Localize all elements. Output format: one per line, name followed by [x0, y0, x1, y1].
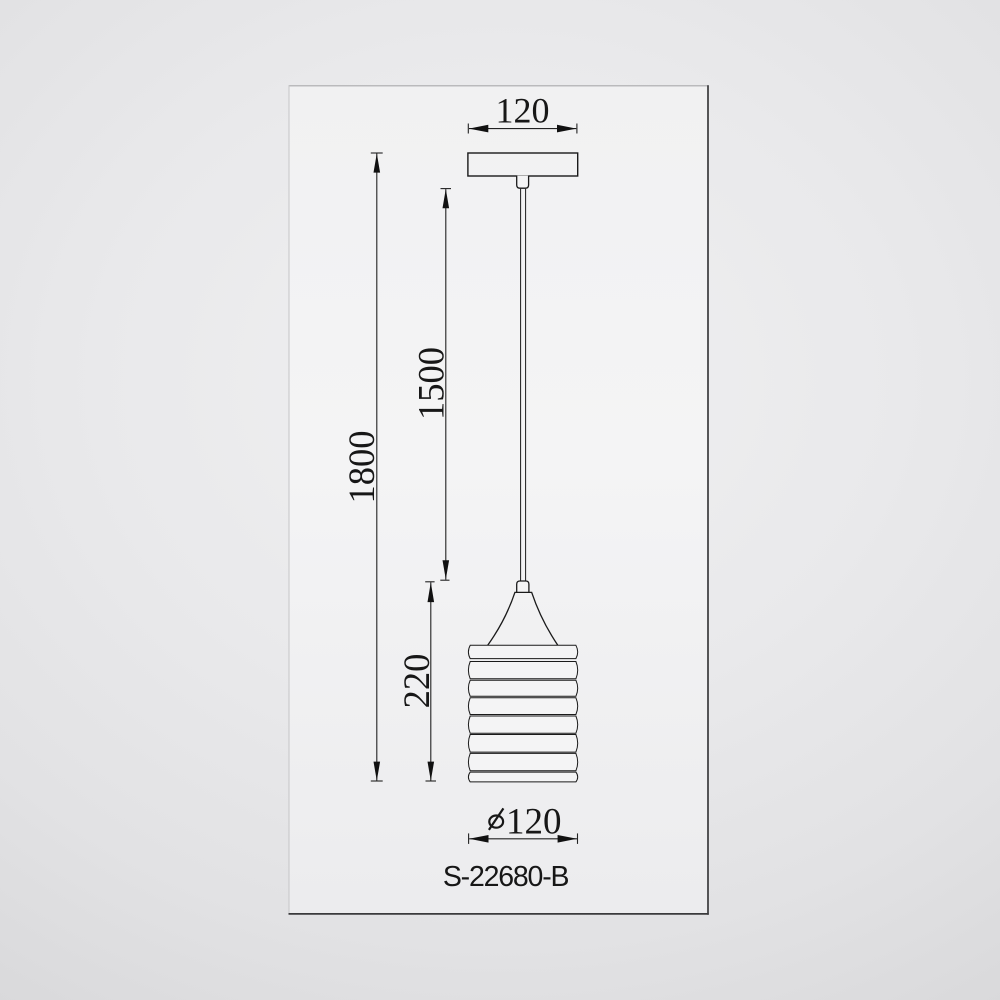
svg-text:120: 120: [496, 91, 550, 131]
svg-text:1500: 1500: [411, 347, 452, 420]
svg-text:120: 120: [506, 802, 562, 843]
svg-text:220: 220: [396, 654, 437, 709]
svg-text:1800: 1800: [341, 431, 382, 504]
svg-text:S-22680-B: S-22680-B: [443, 861, 569, 893]
